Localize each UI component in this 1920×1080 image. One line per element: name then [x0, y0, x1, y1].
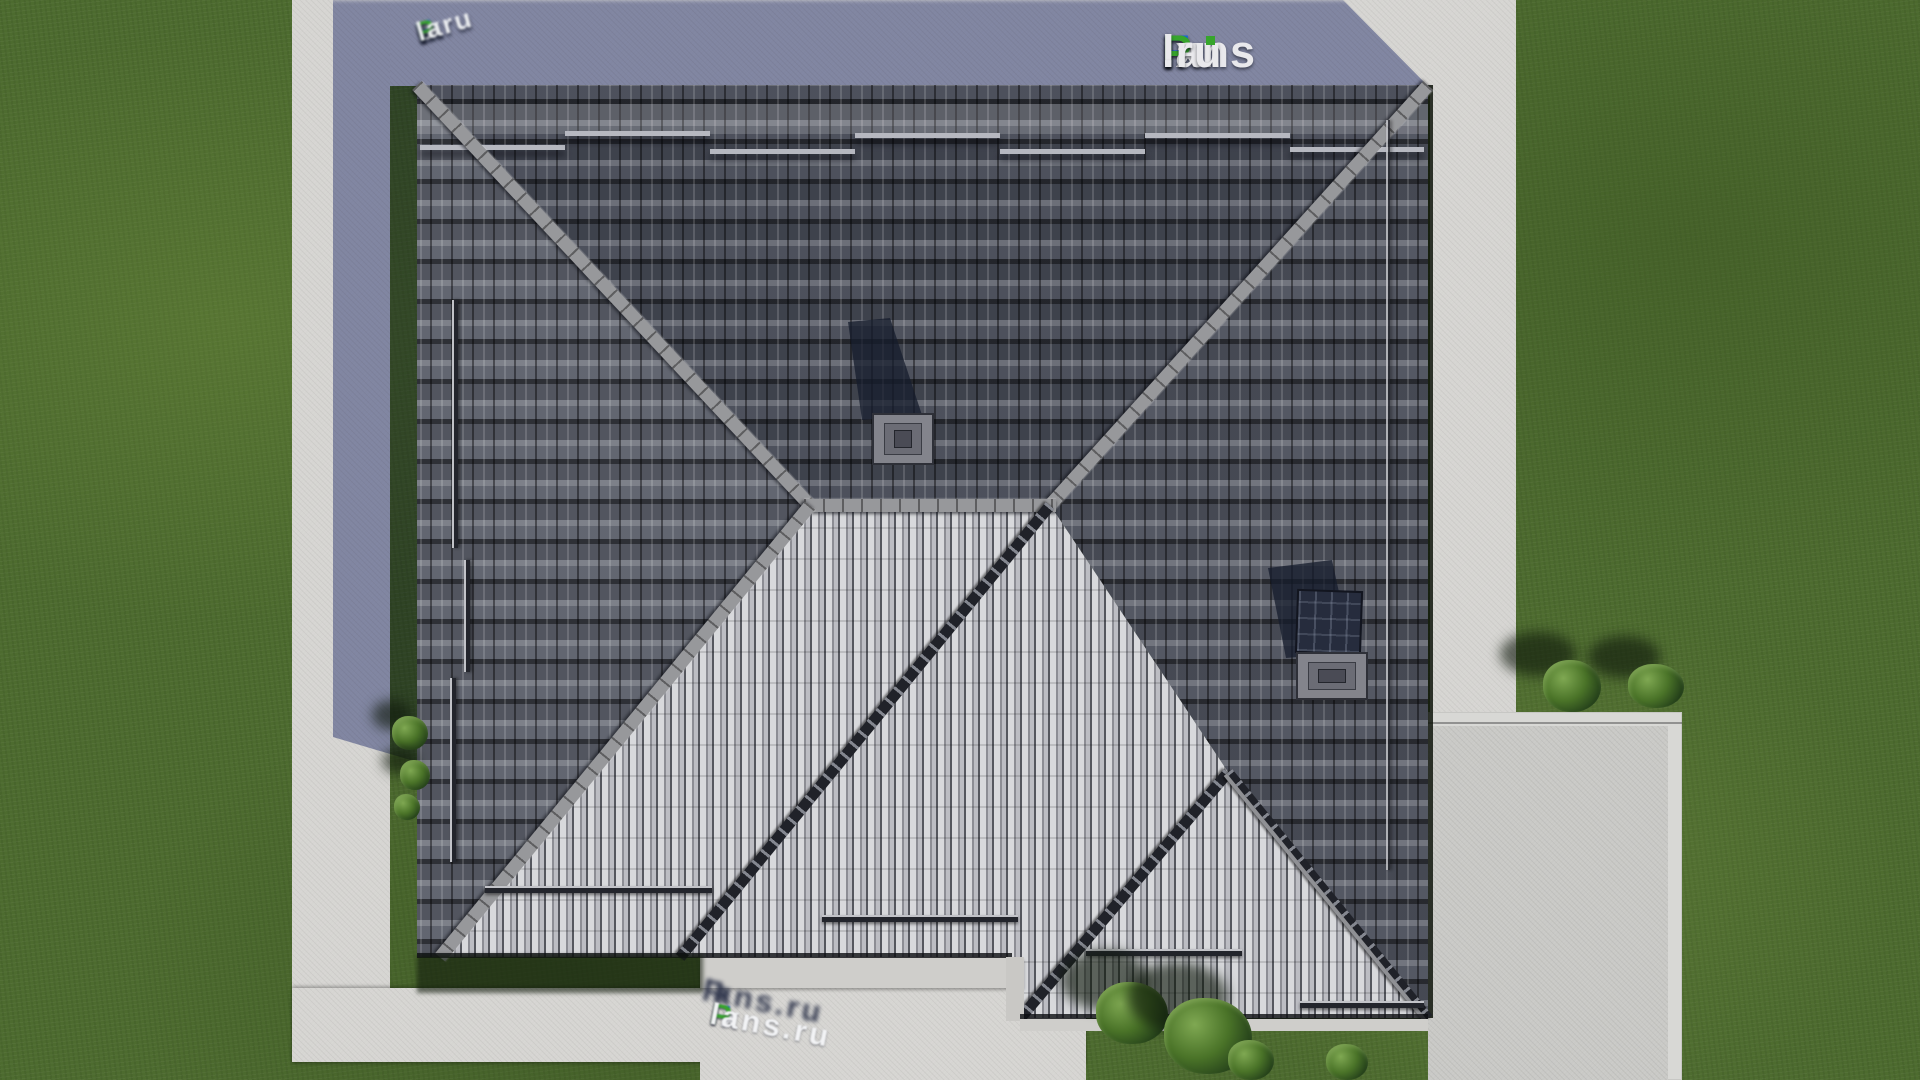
roof-batten-bar [710, 149, 855, 154]
roof-top-eave-course [417, 104, 1428, 134]
gutter-heating-line [1386, 120, 1390, 870]
bush [400, 760, 430, 790]
driveway [1428, 726, 1668, 1080]
roof-batten-bar [1000, 149, 1145, 154]
snow-guard-vertical [450, 678, 456, 862]
bush [1326, 1044, 1368, 1080]
eave-step-fascia [1006, 957, 1024, 1021]
chimney-cap-east [1296, 652, 1368, 700]
logo-suffix-ru: .ru [1162, 26, 1223, 78]
bush [394, 794, 420, 820]
main-ridge [804, 499, 1056, 512]
bush [1628, 664, 1684, 708]
logo-i-dot [1206, 36, 1215, 45]
snow-guard-vertical [464, 560, 470, 672]
chimney-cap [872, 413, 934, 465]
perimeter-path-right [1430, 0, 1516, 714]
chimney-flue [894, 430, 912, 448]
roof-batten-bar [1145, 133, 1290, 138]
snow-guard [822, 915, 1018, 922]
bush [1228, 1040, 1274, 1080]
chimney-east-flue [1318, 669, 1346, 683]
driveway-groove-line [1428, 722, 1682, 724]
roof-batten-bar [1290, 147, 1424, 152]
snow-guard [485, 886, 712, 893]
roof-batten-bar [565, 131, 710, 136]
aerial-roof-render: s.ru FixPla FixPlans.ru FixPlans.ru FixP… [0, 0, 1920, 1080]
roof-batten-bar [855, 133, 1000, 138]
snow-guard [1300, 1001, 1424, 1008]
eave-grass-shadow [417, 955, 703, 993]
snow-guard-vertical [452, 300, 458, 548]
solar-panel [1295, 589, 1363, 655]
roof-batten-bar [420, 145, 565, 150]
bush [392, 716, 428, 750]
